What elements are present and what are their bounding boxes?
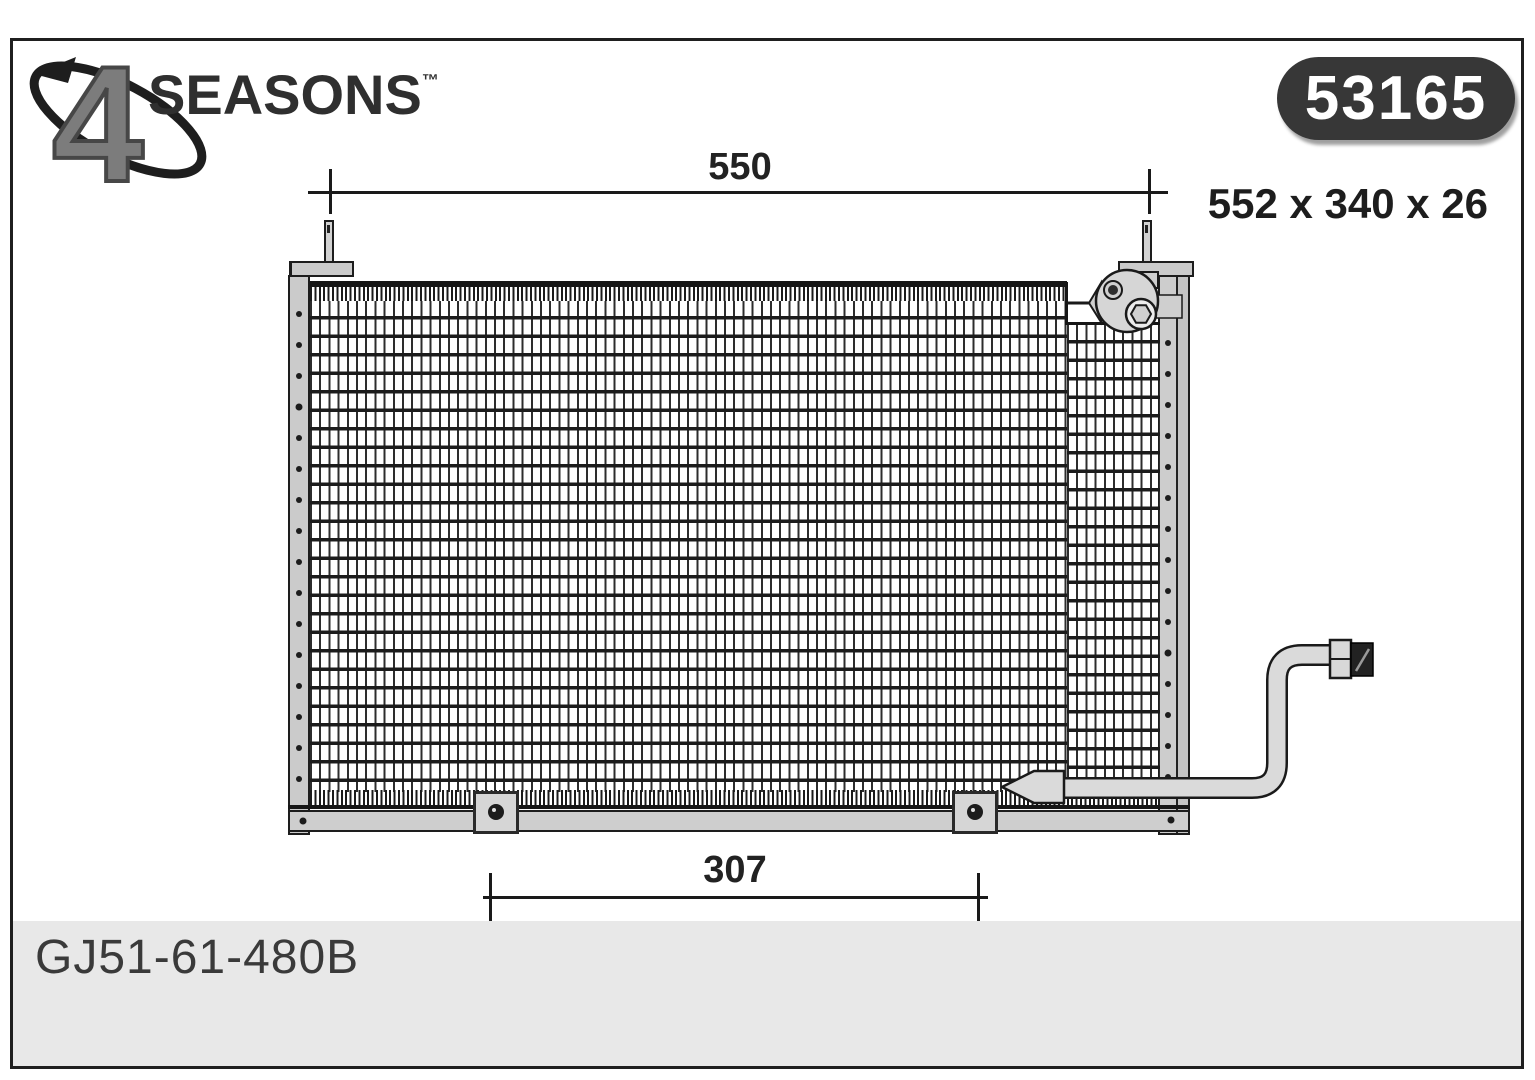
dim-307-line (483, 896, 988, 899)
core-notch-edge-top (1067, 322, 1160, 325)
side-plate-left (288, 275, 310, 835)
condenser-core-grid (310, 301, 1067, 792)
pin-hole (1145, 225, 1148, 233)
trademark-symbol: ™ (422, 71, 439, 90)
core-notch-edge-side (1065, 282, 1068, 325)
core-bottom-header (288, 805, 1190, 809)
catalog-page: 4 SEASONS™ 53165 552 x 340 x 26 550 (0, 0, 1535, 1080)
dim-307-value: 307 (650, 849, 820, 892)
mounting-foot-right (952, 791, 998, 834)
dim-550-line (308, 191, 1168, 194)
condenser-core-grid-right (1067, 325, 1160, 792)
core-bottom-fins (310, 790, 1160, 805)
overall-size-label: 552 x 340 x 26 (1160, 180, 1488, 228)
side-plate-right (1158, 275, 1190, 835)
mounting-foot-left (473, 791, 519, 834)
core-top-fins (310, 287, 1067, 301)
brand-name-text: SEASONS (148, 63, 422, 126)
pin-hole (327, 225, 330, 233)
oem-number: GJ51-61-480B (35, 930, 359, 985)
dim-307-tick-right (977, 873, 980, 926)
dim-550-tick-left (329, 169, 332, 214)
logo-number: 4 (52, 42, 144, 207)
dim-550-tick-right (1148, 169, 1151, 214)
dim-307-tick-left (489, 873, 492, 926)
part-number-badge: 53165 (1277, 57, 1515, 140)
bottom-rail (288, 810, 1190, 832)
dim-550-value: 550 (655, 146, 825, 189)
brand-name: SEASONS™ (148, 62, 439, 127)
